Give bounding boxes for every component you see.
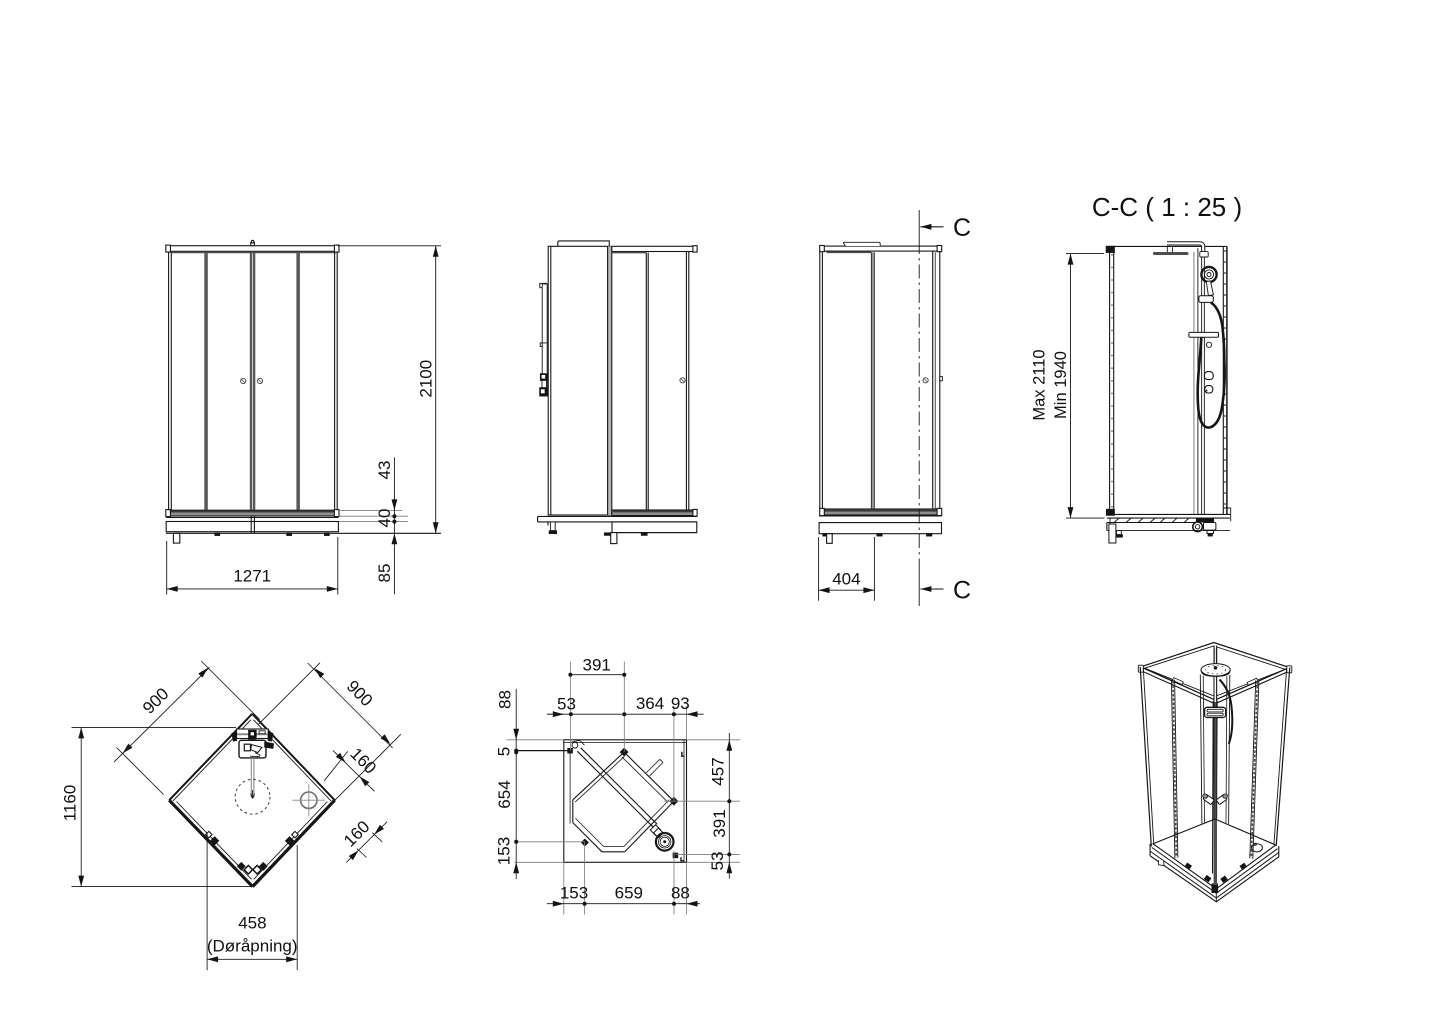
svg-text:364: 364 (636, 694, 664, 713)
svg-text:(Døråpning): (Døråpning) (207, 937, 298, 956)
svg-text:5: 5 (495, 747, 514, 756)
svg-text:391: 391 (710, 809, 729, 837)
svg-text:458: 458 (238, 913, 266, 932)
svg-text:160: 160 (346, 744, 379, 777)
svg-text:153: 153 (560, 883, 588, 902)
svg-text:160: 160 (340, 817, 373, 850)
svg-text:88: 88 (671, 883, 690, 902)
svg-text:85: 85 (375, 564, 394, 583)
svg-text:Max 2110: Max 2110 (1031, 349, 1049, 420)
svg-text:654: 654 (495, 780, 514, 808)
svg-text:C-C ( 1 : 25 ): C-C ( 1 : 25 ) (1092, 192, 1242, 222)
svg-text:659: 659 (615, 883, 643, 902)
svg-text:88: 88 (496, 690, 515, 709)
svg-text:900: 900 (139, 684, 172, 717)
svg-text:93: 93 (671, 694, 690, 713)
svg-text:C: C (953, 577, 971, 605)
svg-text:391: 391 (583, 656, 611, 675)
svg-text:53: 53 (557, 695, 576, 714)
svg-text:53: 53 (708, 852, 727, 871)
svg-text:153: 153 (495, 837, 514, 865)
svg-text:40: 40 (375, 509, 394, 528)
svg-text:43: 43 (375, 461, 394, 480)
svg-text:Min 1940: Min 1940 (1052, 351, 1070, 419)
svg-text:900: 900 (343, 677, 376, 710)
svg-text:1160: 1160 (61, 785, 80, 822)
svg-text:1271: 1271 (233, 567, 271, 586)
svg-text:2100: 2100 (417, 360, 436, 398)
svg-text:457: 457 (709, 757, 728, 785)
svg-text:404: 404 (832, 570, 860, 589)
svg-text:C: C (953, 214, 971, 242)
